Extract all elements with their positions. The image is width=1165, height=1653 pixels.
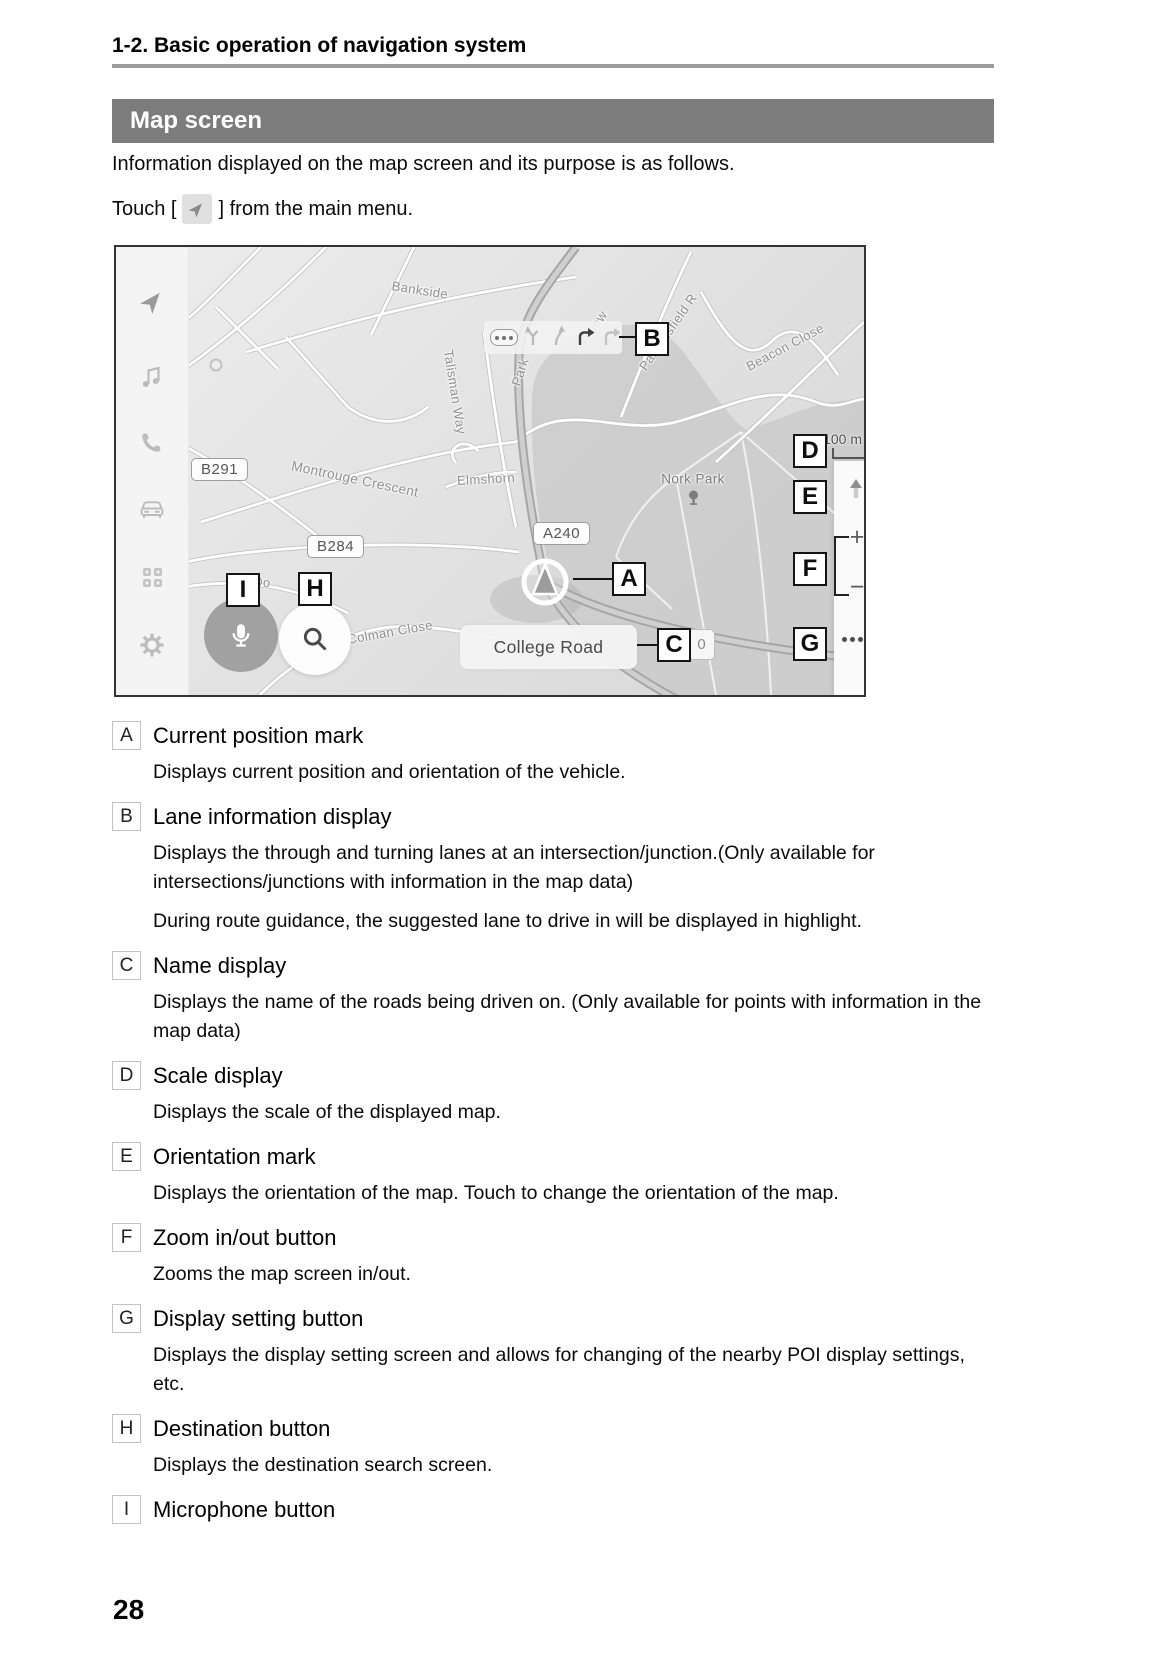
legend-description: Displays the name of the roads being dri…	[153, 988, 983, 1046]
music-icon[interactable]	[137, 363, 167, 398]
legend-title: Name display	[153, 953, 286, 979]
slight-right-arrow-icon	[548, 323, 570, 352]
map-screenshot: Bankside Talisman Way Montrouge Crescent…	[114, 245, 866, 697]
map-callout-a: A	[612, 562, 646, 596]
legend-description: Zooms the map screen in/out.	[153, 1260, 983, 1289]
legend-title: Lane information display	[153, 804, 391, 830]
legend-title: Scale display	[153, 1063, 283, 1089]
callout-line-b	[619, 336, 635, 338]
touch-instruction: Touch [ ] from the main menu.	[112, 192, 1012, 226]
destination-search-button[interactable]	[279, 603, 351, 675]
tree-icon	[687, 490, 700, 512]
map-callout-f: F	[793, 552, 827, 586]
legend-title: Current position mark	[153, 723, 363, 749]
map-sidebar	[116, 247, 189, 695]
legend-item: HDestination buttonDisplays the destinat…	[112, 1414, 996, 1480]
legend-key: B	[112, 802, 141, 831]
legend-description: Displays the display setting screen and …	[153, 1341, 983, 1399]
legend-title: Zoom in/out button	[153, 1225, 336, 1251]
page-number: 28	[113, 1594, 144, 1626]
legend-key: I	[112, 1495, 141, 1524]
legend-description: Displays the through and turning lanes a…	[153, 839, 983, 897]
road-name-text: College Road	[494, 637, 604, 658]
settings-gear-icon[interactable]	[137, 630, 167, 665]
right-turn-arrow-active-icon	[574, 323, 596, 352]
legend-key: C	[112, 951, 141, 980]
callout-line-a	[573, 578, 612, 580]
street-label: Elmshorn	[457, 470, 516, 488]
touch-after: ] from the main menu.	[218, 198, 413, 221]
park-label: Nork Park	[661, 472, 725, 487]
current-position-mark	[515, 552, 575, 617]
map-callout-b: B	[635, 322, 669, 356]
breadcrumb: 1-2. Basic operation of navigation syste…	[112, 34, 526, 58]
navigation-arrow-icon	[182, 194, 212, 224]
map-callout-d: D	[793, 434, 827, 468]
legend-item: CName displayDisplays the name of the ro…	[112, 951, 996, 1046]
legend-key: D	[112, 1061, 141, 1090]
apps-grid-icon[interactable]	[137, 562, 167, 597]
legend-title: Display setting button	[153, 1306, 363, 1332]
road-name-display: College Road	[460, 625, 637, 669]
legend-title: Microphone button	[153, 1497, 335, 1523]
display-setting-button[interactable]	[842, 637, 863, 642]
legend-item: DScale displayDisplays the scale of the …	[112, 1061, 996, 1127]
map-callout-e: E	[793, 480, 827, 514]
section-banner: Map screen	[112, 99, 994, 143]
road-shield: B291	[191, 458, 248, 481]
map-callout-c: C	[657, 628, 691, 662]
car-icon[interactable]	[137, 495, 167, 530]
manual-page: 1-2. Basic operation of navigation syste…	[0, 0, 1165, 1653]
road-shield: A240	[533, 522, 590, 545]
touch-before: Touch [	[112, 198, 176, 221]
microphone-button[interactable]	[204, 598, 278, 672]
legend-item: GDisplay setting buttonDisplays the disp…	[112, 1304, 996, 1399]
orientation-mark-icon[interactable]	[847, 478, 865, 507]
legend-title: Orientation mark	[153, 1144, 316, 1170]
legend-description: Displays the orientation of the map. Tou…	[153, 1179, 983, 1208]
legend-key: A	[112, 721, 141, 750]
legend-item: IMicrophone button	[112, 1495, 996, 1524]
legend-description: Displays the destination search screen.	[153, 1451, 983, 1480]
scale-bar	[832, 448, 864, 459]
phone-icon[interactable]	[137, 429, 167, 464]
lane-information-display	[484, 321, 622, 354]
legend-key: E	[112, 1142, 141, 1171]
legend-description: Displays the scale of the displayed map.	[153, 1098, 983, 1127]
items-list: ACurrent position markDisplays current p…	[112, 706, 996, 1532]
legend-description: Displays current position and orientatio…	[153, 758, 983, 787]
legend-item: BLane information displayDisplays the th…	[112, 802, 996, 936]
legend-key: G	[112, 1304, 141, 1333]
legend-key: F	[112, 1223, 141, 1252]
callout-line-c	[637, 644, 657, 646]
section-banner-label: Map screen	[112, 107, 262, 135]
more-dots-pill-icon	[490, 329, 518, 346]
road-shield: B284	[307, 535, 364, 558]
poi-counter: 0	[688, 629, 715, 660]
map-callout-i: I	[226, 573, 260, 607]
legend-item: ACurrent position markDisplays current p…	[112, 721, 996, 787]
legend-key: H	[112, 1414, 141, 1443]
legend-description: During route guidance, the suggested lan…	[153, 907, 983, 936]
legend-item: EOrientation markDisplays the orientatio…	[112, 1142, 996, 1208]
zoom-bracket	[834, 536, 849, 596]
map-callout-g: G	[793, 627, 827, 661]
legend-title: Destination button	[153, 1416, 330, 1442]
navigation-icon[interactable]	[137, 287, 167, 322]
header-rule	[112, 64, 994, 68]
intro-text: Information displayed on the map screen …	[112, 153, 1012, 176]
legend-item: FZoom in/out buttonZooms the map screen …	[112, 1223, 996, 1289]
fork-arrow-icon	[522, 323, 544, 352]
map-callout-h: H	[298, 572, 332, 606]
